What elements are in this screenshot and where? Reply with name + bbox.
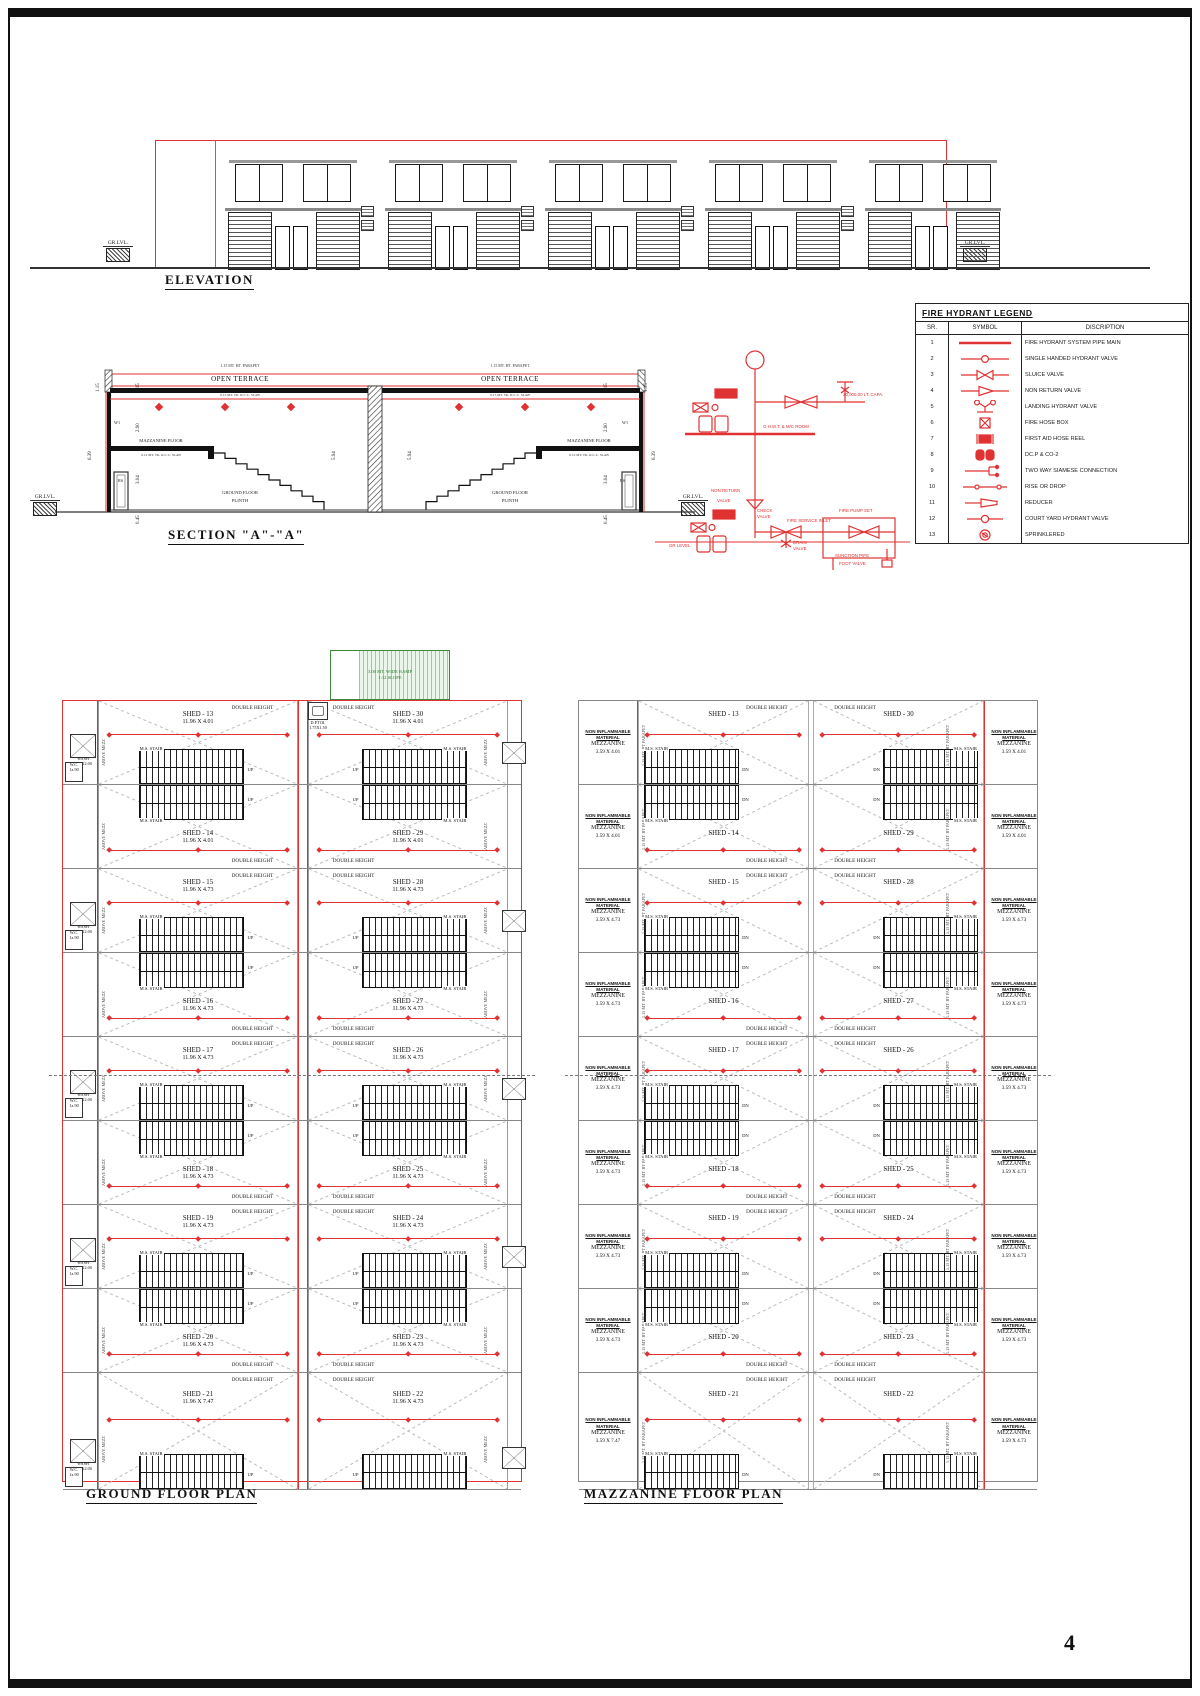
above-mezz-label: ABOVE MEZZ <box>101 1243 106 1270</box>
double-height-label: DOUBLE HEIGHT <box>232 1362 274 1368</box>
material-label: NON INFLAMMABLEMATERIALMEZZANINE3.59 X 4… <box>991 1065 1036 1092</box>
wc-label: W.C. 1x.90 <box>66 763 82 773</box>
dimension-line <box>319 734 497 735</box>
dimension-line <box>109 1419 287 1420</box>
ms-stair-label: M.S. STAIR <box>139 746 164 751</box>
shed-label: SHED - 1711.96 X 4.73 <box>99 1047 297 1062</box>
dimension-line <box>319 1419 497 1420</box>
front-wall-gap <box>298 1205 308 1288</box>
shed-label: SHED - 19 <box>639 1215 808 1223</box>
legend-description: DC.P & CO-2 <box>1022 447 1189 463</box>
front-wall-gap <box>298 785 308 868</box>
ms-stair-label: M.S. STAIR <box>953 1154 978 1159</box>
ground-level-marker: GR.LVL. <box>960 240 990 262</box>
legend-sr: 6 <box>916 415 949 431</box>
window-tag: W1 <box>622 420 636 425</box>
ms-stair-label: M.S. STAIR <box>953 1082 978 1087</box>
mezzanine-floor-label: MAZZANINE FLOOR <box>546 438 632 443</box>
toilet-icon <box>308 702 328 720</box>
front-wall-gap <box>298 869 308 952</box>
service-strip <box>508 1205 528 1288</box>
dn-label: DN <box>742 1301 749 1306</box>
sprinkler-icon <box>955 528 1015 542</box>
rolling-shutter <box>796 212 840 270</box>
dimension-line <box>647 902 799 903</box>
ground-level-marker: GR.LVL. <box>103 240 133 262</box>
wc-label: W.C. 1x.90 <box>66 1468 82 1478</box>
ms-stair <box>362 749 467 784</box>
double-height-label: DOUBLE HEIGHT <box>333 705 375 711</box>
dim-6-39: 6.39 <box>88 451 93 460</box>
vent-icon <box>681 220 694 231</box>
ms-stair-label: M.S. STAIR <box>953 986 978 991</box>
dimension-line <box>822 1070 974 1071</box>
ms-stair-label: M.S. STAIR <box>953 914 978 919</box>
mezzanine-material-cell: NON INFLAMMABLEMATERIALMEZZANINE3.59 X 4… <box>984 1205 1043 1288</box>
material-label: NON INFLAMMABLEMATERIALMEZZANINE3.59 X 4… <box>585 981 630 1008</box>
ms-stair <box>139 1121 244 1156</box>
plan-row: NON INFLAMMABLEMATERIALMEZZANINE3.59 X 4… <box>579 953 1037 1037</box>
dimension-line <box>109 1018 287 1019</box>
shed-label: SHED - 13 <box>639 711 808 719</box>
window <box>875 164 923 202</box>
elevation-drawing: GR.LVL. GR.LVL. <box>55 128 1147 274</box>
wash-box: WASH 2.00X2.00 <box>70 1070 96 1094</box>
double-height-label: DOUBLE HEIGHT <box>746 1362 788 1368</box>
shed-label: SHED - 2011.96 X 4.73 <box>99 1334 297 1349</box>
mezzanine-material-cell: NON INFLAMMABLEMATERIALMEZZANINE3.59 X 4… <box>579 1037 638 1120</box>
above-mezz-label: 1.15 MT. HT PARAPET <box>945 1229 950 1270</box>
dn-label: DN <box>873 767 880 772</box>
dimension-line <box>109 1238 287 1239</box>
shed-label: SHED - 1511.96 X 4.73 <box>99 879 297 894</box>
mezzanine-material-cell: NON INFLAMMABLEMATERIALMEZZANINE3.59 X 4… <box>984 1121 1043 1204</box>
window <box>715 164 763 202</box>
ms-stair-label: M.S. STAIR <box>644 914 669 919</box>
plinth-label: PLINTH <box>180 498 300 503</box>
landing-hydrant-valve-icon <box>955 400 1015 414</box>
shed-cell: SHED - 1511.96 X 4.73M.S. STAIRUPDOUBLE … <box>98 869 298 952</box>
shed-cell: SHED - 2511.96 X 4.73M.S. STAIRUPDOUBLE … <box>308 1121 508 1204</box>
ground-level-hatch-icon <box>33 502 57 516</box>
up-label: UP <box>248 1472 254 1477</box>
front-wall-gap <box>298 1373 308 1489</box>
ms-stair <box>644 917 739 952</box>
window-tag: W1 <box>114 420 128 425</box>
ms-stair-label: M.S. STAIR <box>953 746 978 751</box>
shed-label: SHED - 23 <box>814 1334 983 1342</box>
above-mezz-label: 1.15 MT. HT PARAPET <box>641 1145 646 1186</box>
double-height-label: DOUBLE HEIGHT <box>746 1209 788 1215</box>
dimension-line <box>822 850 974 851</box>
door <box>435 226 450 270</box>
wash-box <box>502 742 526 764</box>
double-height-label: DOUBLE HEIGHT <box>746 873 788 879</box>
legend-sr: 1 <box>916 335 949 352</box>
plan-row: SHED - 1611.96 X 4.73M.S. STAIRUPDOUBLE … <box>63 953 521 1037</box>
window <box>783 164 831 202</box>
service-strip: WASH 2.00X2.00W.C. 1x.90 <box>63 1037 98 1120</box>
gr-lvl-label: GR.LVL. <box>103 240 133 247</box>
above-mezz-label: ABOVE MEZZ <box>101 1159 106 1186</box>
material-label: NON INFLAMMABLEMATERIALMEZZANINE3.59 X 4… <box>991 1149 1036 1176</box>
up-label: UP <box>248 1103 254 1108</box>
wc-box: W.C. 1x.90 <box>65 930 83 950</box>
wash-box <box>502 1447 526 1469</box>
plan-row: NON INFLAMMABLEMATERIALMEZZANINE3.59 X 4… <box>579 1205 1037 1289</box>
shed-cell: SHED - 2911.96 X 4.01M.S. STAIRUPDOUBLE … <box>308 785 508 868</box>
vent-icon <box>361 206 374 217</box>
mezzanine-floor-plan: NON INFLAMMABLEMATERIALMEZZANINE3.59 X 4… <box>578 700 1038 1482</box>
shutter-tag: RS <box>118 478 130 483</box>
legend-row: 6FIRE HOSE BOX <box>916 415 1188 431</box>
door <box>453 226 468 270</box>
ms-stair <box>644 1085 739 1120</box>
double-height-label: DOUBLE HEIGHT <box>232 705 274 711</box>
door <box>933 226 948 270</box>
single-hydrant-valve-icon <box>955 352 1015 366</box>
dimension-line <box>319 902 497 903</box>
legend-sr: 10 <box>916 479 949 495</box>
vent-icon <box>841 220 854 231</box>
ms-stair <box>139 1454 244 1489</box>
legend-symbol-cell <box>949 511 1022 527</box>
above-mezz-label: 1.15 MT. HT PARAPET <box>641 1422 646 1463</box>
mezzanine-material-cell: NON INFLAMMABLEMATERIALMEZZANINE3.59 X 4… <box>984 785 1043 868</box>
material-label: NON INFLAMMABLEMATERIALMEZZANINE3.59 X 4… <box>991 813 1036 840</box>
shed-label: SHED - 21 <box>639 1391 808 1399</box>
double-height-label: DOUBLE HEIGHT <box>834 858 876 864</box>
ms-stair <box>883 1454 978 1489</box>
above-mezz-label: ABOVE MEZZ <box>101 991 106 1018</box>
dn-label: DN <box>873 1301 880 1306</box>
mezzanine-floor-label: MAZZANINE FLOOR <box>118 438 204 443</box>
legend-sr: 11 <box>916 495 949 511</box>
dim-1-15: 1.15 <box>96 383 101 392</box>
shed-cell: SHED - 20M.S. STAIRDNDOUBLE HEIGHT1.15 M… <box>638 1289 809 1372</box>
fire-service-inlet-label: FIRE SERVICE INLET <box>787 518 831 524</box>
ms-stair <box>883 785 978 820</box>
wc-box: W.C. 1x.90 <box>65 1098 83 1118</box>
rolling-shutter <box>548 212 592 270</box>
ms-stair <box>644 1454 739 1489</box>
legend-description: NON RETURN VALVE <box>1022 383 1189 399</box>
ms-stair <box>362 917 467 952</box>
ms-stair-label: M.S. STAIR <box>644 986 669 991</box>
ms-stair-label: M.S. STAIR <box>139 914 164 919</box>
double-height-label: DOUBLE HEIGHT <box>333 1377 375 1383</box>
up-label: UP <box>248 767 254 772</box>
dimension-line <box>822 734 974 735</box>
plan-row: NON INFLAMMABLEMATERIALMEZZANINE3.59 X 4… <box>579 1289 1037 1373</box>
rolling-shutter <box>476 212 520 270</box>
wc-box: W.C. 1x.90 <box>65 762 83 782</box>
window <box>395 164 443 202</box>
above-mezz-label: ABOVE MEZZ <box>483 1243 488 1270</box>
dim-1-15: 1.15 <box>136 383 141 392</box>
rolling-shutter <box>388 212 432 270</box>
dimension-line <box>647 850 799 851</box>
material-label: NON INFLAMMABLEMATERIALMEZZANINE3.59 X 4… <box>585 813 630 840</box>
section-title: SECTION "A"-"A" <box>168 527 304 545</box>
legend-symbol-cell <box>949 415 1022 431</box>
rolling-shutter <box>636 212 680 270</box>
legend-description: COURT YARD HYDRANT VALVE <box>1022 511 1189 527</box>
service-strip <box>508 1373 528 1489</box>
parapet-note: 1.15 MT. HT. PARAPET <box>420 364 600 368</box>
legend-sr: 2 <box>916 351 949 367</box>
ms-stair <box>644 953 739 988</box>
plan-row: NON INFLAMMABLEMATERIALMEZZANINE3.59 X 4… <box>579 1037 1037 1121</box>
legend-row: 10RISE OR DROP <box>916 479 1188 495</box>
shed-label: SHED - 3011.96 X 4.01 <box>309 711 507 726</box>
above-mezz-label: 1.15 MT. HT PARAPET <box>641 1313 646 1354</box>
double-height-label: DOUBLE HEIGHT <box>834 1026 876 1032</box>
double-height-label: DOUBLE HEIGHT <box>333 1362 375 1368</box>
material-label: NON INFLAMMABLEMATERIALMEZZANINE3.59 X 7… <box>585 1417 630 1444</box>
shutter-tag: RS <box>620 478 632 483</box>
ms-stair-label: M.S. STAIR <box>644 818 669 823</box>
section-cut-line <box>49 1075 535 1076</box>
shed-cell: SHED - 13M.S. STAIRDNDOUBLE HEIGHT1.15 M… <box>638 701 809 784</box>
ohwt-label: O.H.W.T. & M/C ROOM <box>763 424 809 430</box>
ms-stair-label: M.S. STAIR <box>139 818 164 823</box>
above-mezz-label: 1.15 MT. HT PARAPET <box>945 1422 950 1463</box>
mezzanine-material-cell: NON INFLAMMABLEMATERIALMEZZANINE3.59 X 4… <box>579 1121 638 1204</box>
schematic-linework <box>655 342 910 572</box>
shed-label: SHED - 29 <box>814 830 983 838</box>
up-label: UP <box>353 797 359 802</box>
plan-row: SHED - 1811.96 X 4.73M.S. STAIRUPDOUBLE … <box>63 1121 521 1205</box>
wc-box: W.C. 1x.90 <box>65 1266 83 1286</box>
ms-stair-label: M.S. STAIR <box>953 1451 978 1456</box>
double-height-label: DOUBLE HEIGHT <box>333 873 375 879</box>
ms-stair <box>644 1121 739 1156</box>
double-height-label: DOUBLE HEIGHT <box>333 1026 375 1032</box>
front-wall-gap <box>298 953 308 1036</box>
legend-symbol-cell <box>949 335 1022 352</box>
up-label: UP <box>248 1271 254 1276</box>
dn-label: DN <box>742 935 749 940</box>
legend-row: 5LANDING HYDRANT VALVE <box>916 399 1188 415</box>
shed-label: SHED - 15 <box>639 879 808 887</box>
double-height-label: DOUBLE HEIGHT <box>834 873 876 879</box>
wash-box <box>502 1078 526 1100</box>
shed-label: SHED - 2411.96 X 4.73 <box>309 1215 507 1230</box>
shed-label: SHED - 1811.96 X 4.73 <box>99 1166 297 1181</box>
rolling-shutter <box>868 212 912 270</box>
legend-sr: 13 <box>916 527 949 543</box>
shed-cell: SHED - 1911.96 X 4.73M.S. STAIRUPDOUBLE … <box>98 1205 298 1288</box>
above-mezz-label: ABOVE MEZZ <box>483 991 488 1018</box>
pipe-main-icon <box>955 336 1015 350</box>
legend-row: 8DC.P & CO-2 <box>916 447 1188 463</box>
shed-cell: SHED - 26M.S. STAIRDNDOUBLE HEIGHT1.15 M… <box>813 1037 984 1120</box>
plan-row: NON INFLAMMABLEMATERIALMEZZANINE3.59 X 4… <box>579 869 1037 953</box>
dn-label: DN <box>873 1472 880 1477</box>
plinth-label: PLINTH <box>450 498 570 503</box>
wc-box: W.C. 1x.90 <box>65 1467 83 1487</box>
legend-symbol-cell <box>949 527 1022 543</box>
legend-symbol-cell <box>949 399 1022 415</box>
above-mezz-label: ABOVE MEZZ <box>483 907 488 934</box>
ms-stair <box>139 749 244 784</box>
shed-cell: SHED - 2211.96 X 4.73M.S. STAIRUPDOUBLE … <box>308 1373 508 1489</box>
material-label: NON INFLAMMABLEMATERIALMEZZANINE3.59 X 4… <box>585 729 630 756</box>
plan-row: NON INFLAMMABLEMATERIALMEZZANINE3.59 X 4… <box>579 701 1037 785</box>
ms-stair-label: M.S. STAIR <box>953 1250 978 1255</box>
shed-label: SHED - 27 <box>814 998 983 1006</box>
front-wall-gap <box>298 1037 308 1120</box>
mezzanine-material-cell: NON INFLAMMABLEMATERIALMEZZANINE3.59 X 4… <box>984 953 1043 1036</box>
shed-cell: SHED - 17M.S. STAIRDNDOUBLE HEIGHT1.15 M… <box>638 1037 809 1120</box>
ms-stair <box>139 1289 244 1324</box>
shed-cell: SHED - 25M.S. STAIRDNDOUBLE HEIGHT1.15 M… <box>813 1121 984 1204</box>
door <box>275 226 290 270</box>
legend-row: 11REDUCER <box>916 495 1188 511</box>
ms-stair-label: M.S. STAIR <box>442 1082 467 1087</box>
ground-level-marker: GR.LVL. <box>30 494 60 516</box>
front-wall-gap <box>298 1121 308 1204</box>
shed-cell: SHED - 2011.96 X 4.73M.S. STAIRUPDOUBLE … <box>98 1289 298 1372</box>
service-strip <box>508 701 528 784</box>
legend-sr: 9 <box>916 463 949 479</box>
door <box>293 226 308 270</box>
above-mezz-label: ABOVE MEZZ <box>483 1437 488 1464</box>
gr-lvl-label: GR.LVL. <box>960 240 990 247</box>
shed-label: SHED - 18 <box>639 1166 808 1174</box>
ground-level-hatch-icon <box>963 248 987 262</box>
dimension-line <box>647 1354 799 1355</box>
shed-cell: SHED - 2111.96 X 7.47M.S. STAIRUPDOUBLE … <box>98 1373 298 1489</box>
dimension-line <box>319 1018 497 1019</box>
dn-label: DN <box>873 1103 880 1108</box>
rolling-shutter <box>708 212 752 270</box>
dimension-line <box>647 1070 799 1071</box>
elevation-bay <box>707 164 839 268</box>
mezzanine-material-cell: NON INFLAMMABLEMATERIALMEZZANINE3.59 X 4… <box>579 1289 638 1372</box>
service-strip <box>508 1121 528 1204</box>
foot-valve-label: FOOT VALVE <box>839 561 866 567</box>
shed-cell: SHED - 15M.S. STAIRDNDOUBLE HEIGHT1.15 M… <box>638 869 809 952</box>
double-height-label: DOUBLE HEIGHT <box>232 1377 274 1383</box>
first-aid-hose-reel-icon <box>955 432 1015 446</box>
ms-stair-label: M.S. STAIR <box>644 1154 669 1159</box>
legend-title: FIRE HYDRANT LEGEND <box>916 304 1188 322</box>
service-strip: WASH 2.00X2.00W.C. 1x.90 <box>63 701 98 784</box>
legend-table: SR. SYMBOL DISCRIPTION 1FIRE HYDRANT SYS… <box>916 322 1188 543</box>
legend-symbol-cell <box>949 431 1022 447</box>
shed-cell: SHED - 2311.96 X 4.73M.S. STAIRUPDOUBLE … <box>308 1289 508 1372</box>
dimension-line <box>822 1238 974 1239</box>
ms-stair-label: M.S. STAIR <box>442 914 467 919</box>
up-label: UP <box>248 965 254 970</box>
dimension-line <box>822 902 974 903</box>
ms-stair <box>883 749 978 784</box>
wash-box: WASH 2.00X2.00 <box>70 734 96 758</box>
vent-icon <box>521 220 534 231</box>
section-drawing: 1.15 MT. HT. PARAPET1.15 MT. HT. PARAPET… <box>90 362 660 538</box>
legend-row: 13SPRINKLERED <box>916 527 1188 543</box>
double-height-label: DOUBLE HEIGHT <box>232 1041 274 1047</box>
ms-stair-label: M.S. STAIR <box>442 1250 467 1255</box>
ground-floor-label: GROUND FLOOR <box>180 490 300 495</box>
legend-description: RISE OR DROP <box>1022 479 1189 495</box>
ground-floor-label: GROUND FLOOR <box>450 490 570 495</box>
ms-stair <box>883 1085 978 1120</box>
plan-row: WASH 2.00X2.00W.C. 1x.90SHED - 1311.96 X… <box>63 701 521 785</box>
plan-row: WASH 2.00X2.00W.C. 1x.90SHED - 2111.96 X… <box>63 1373 521 1490</box>
ms-stair <box>883 917 978 952</box>
legend-description: FIRE HYDRANT SYSTEM PIPE MAIN <box>1022 335 1189 352</box>
shed-label: SHED - 1411.96 X 4.01 <box>99 830 297 845</box>
slab-note: 0.15 MT. TK. R.C.C. SLAB <box>150 393 330 397</box>
dim-0-45: 0.45 <box>604 515 609 524</box>
shed-cell: SHED - 28M.S. STAIRDNDOUBLE HEIGHT1.15 M… <box>813 869 984 952</box>
shed-cell: SHED - 1311.96 X 4.01M.S. STAIRUPDOUBLE … <box>98 701 298 784</box>
dimension-line <box>319 1186 497 1187</box>
ms-stair <box>362 1253 467 1288</box>
dn-label: DN <box>873 935 880 940</box>
reducer-icon <box>955 496 1015 510</box>
double-height-label: DOUBLE HEIGHT <box>232 1026 274 1032</box>
legend-header-symbol: SYMBOL <box>949 322 1022 335</box>
elevation-title: ELEVATION <box>165 272 254 290</box>
window <box>235 164 283 202</box>
shed-label: SHED - 2711.96 X 4.73 <box>309 998 507 1013</box>
gr-lvl-label: GR.LVL. <box>30 494 60 501</box>
check-valve-label: CHECK VALVE <box>757 508 772 519</box>
rolling-shutter <box>228 212 272 270</box>
dp-toi-size: 1.75X1.50 <box>305 725 331 730</box>
shed-label: SHED - 2511.96 X 4.73 <box>309 1166 507 1181</box>
shed-cell: SHED - 24M.S. STAIRDNDOUBLE HEIGHT1.15 M… <box>813 1205 984 1288</box>
shed-cell: SHED - 2611.96 X 4.73M.S. STAIRUPDOUBLE … <box>308 1037 508 1120</box>
plan-row: NON INFLAMMABLEMATERIALMEZZANINE3.59 X 4… <box>579 1121 1037 1205</box>
legend-description: FIRST AID HOSE REEL <box>1022 431 1189 447</box>
elevation-bays <box>227 164 943 268</box>
window <box>303 164 351 202</box>
legend-row: 9TWO WAY SIAMESE CONNECTION <box>916 463 1188 479</box>
dimension-line <box>822 1354 974 1355</box>
double-height-label: DOUBLE HEIGHT <box>333 1194 375 1200</box>
plan-row: NON INFLAMMABLEMATERIALMEZZANINE3.59 X 4… <box>579 785 1037 869</box>
mezzanine-material-cell: NON INFLAMMABLEMATERIALMEZZANINE3.59 X 4… <box>984 1037 1043 1120</box>
dimension-line <box>647 1419 799 1420</box>
legend-symbol-cell <box>949 383 1022 399</box>
shed-label: SHED - 16 <box>639 998 808 1006</box>
above-mezz-label: 1.15 MT. HT PARAPET <box>945 893 950 934</box>
above-mezz-label: 1.15 MT. HT PARAPET <box>641 977 646 1018</box>
dimension-line <box>822 1018 974 1019</box>
service-strip <box>508 785 528 868</box>
vent-icon <box>521 206 534 217</box>
elevation-bay <box>547 164 679 268</box>
dimension-line <box>647 1018 799 1019</box>
ms-stair-label: M.S. STAIR <box>442 1154 467 1159</box>
up-label: UP <box>353 1301 359 1306</box>
ground-floor-plan: WASH 2.00X2.00W.C. 1x.90SHED - 1311.96 X… <box>62 700 522 1482</box>
ms-stair-label: M.S. STAIR <box>139 1451 164 1456</box>
service-strip <box>508 1037 528 1120</box>
dimension-line <box>109 850 287 851</box>
up-label: UP <box>353 1472 359 1477</box>
open-terrace-label: OPEN TERRACE <box>420 375 600 383</box>
ground-level-hatch-icon <box>106 248 130 262</box>
dim-2-90: 2.90 <box>136 423 141 432</box>
shed-cell: SHED - 30M.S. STAIRDNDOUBLE HEIGHT1.15 M… <box>813 701 984 784</box>
rolling-shutter <box>316 212 360 270</box>
